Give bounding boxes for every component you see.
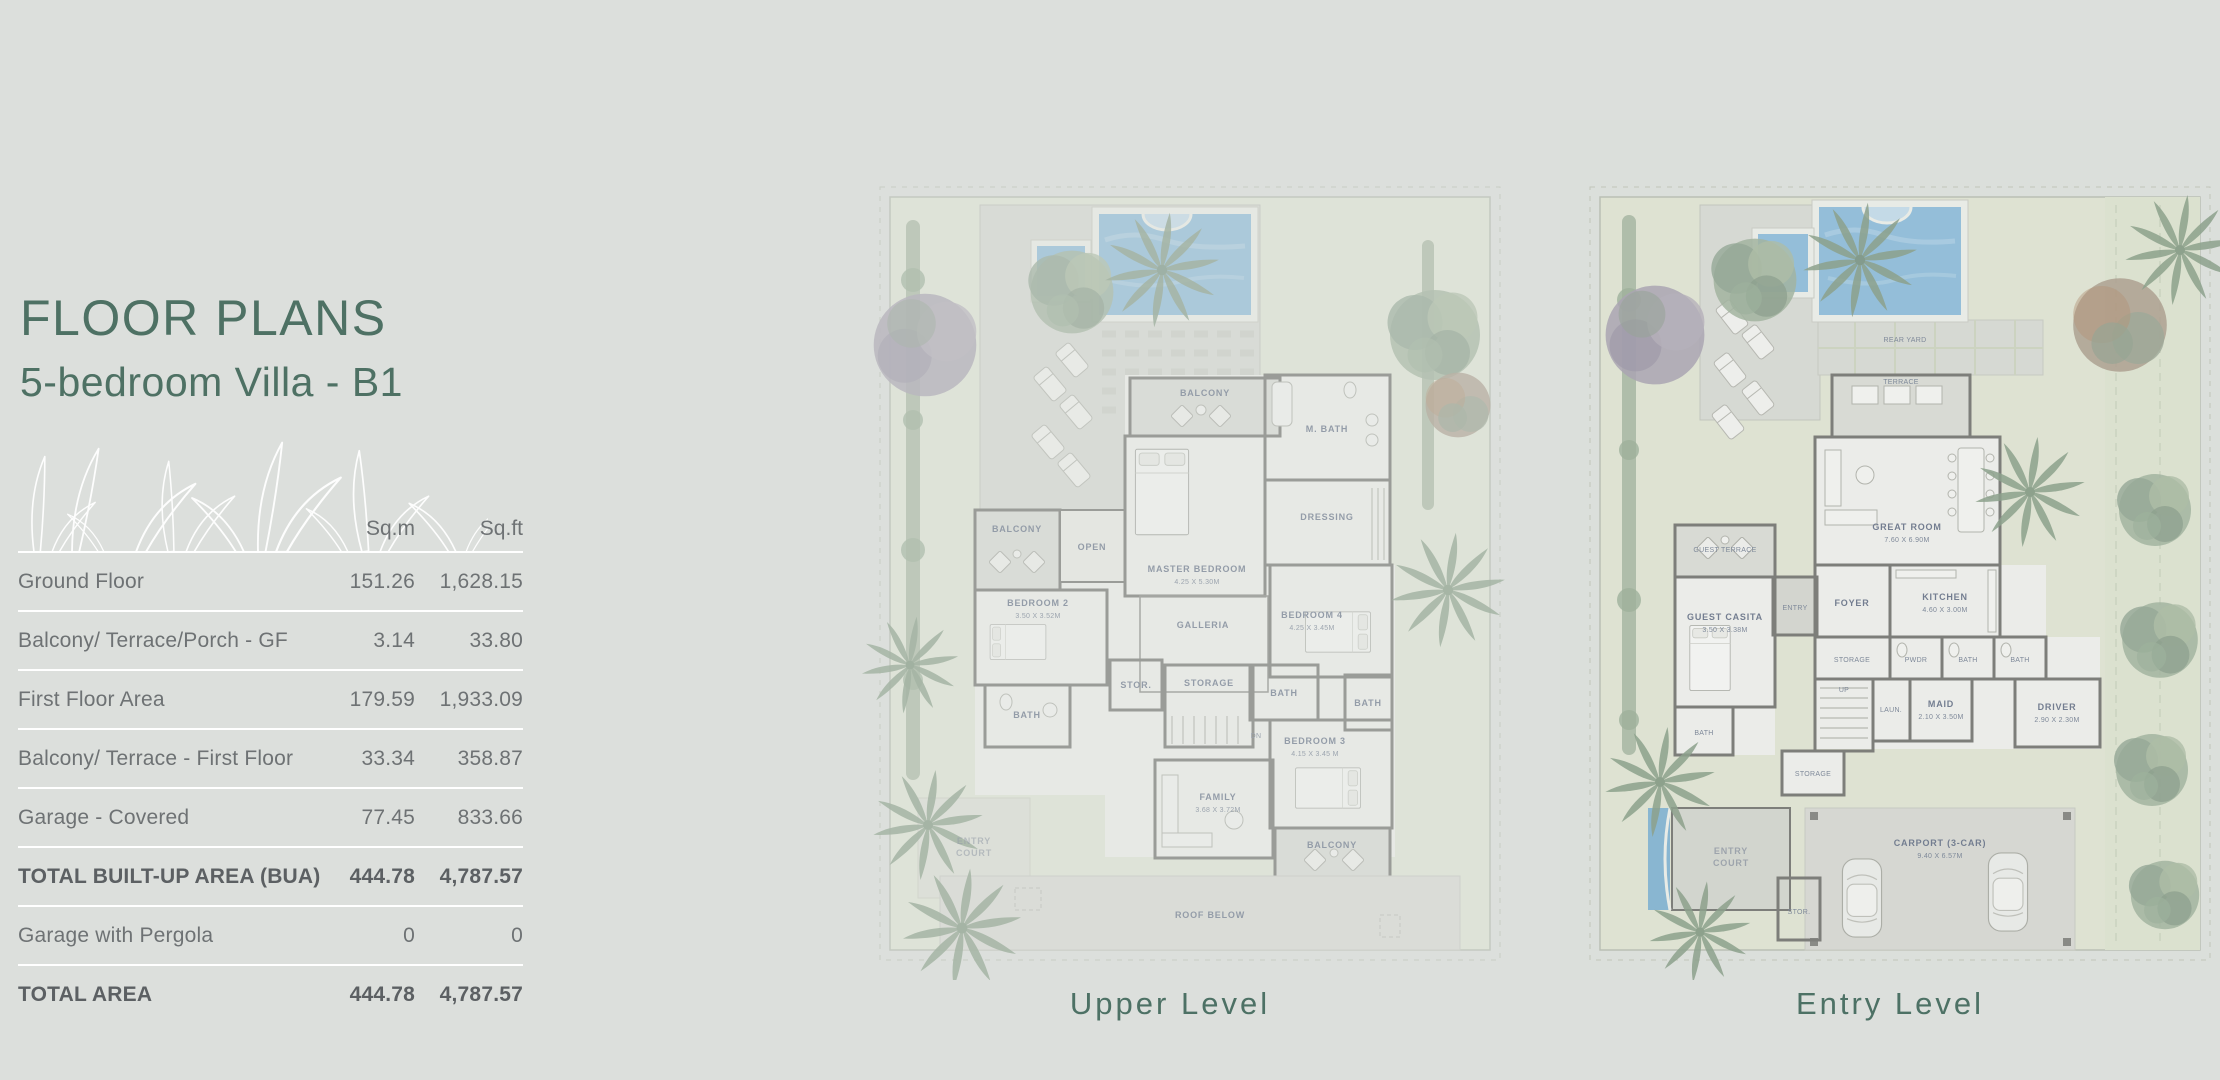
table-rows: Ground Floor 151.26 1,628.15 Balcony/ Te… [18,553,523,1023]
row-sqm-value: 444.78 [335,865,415,889]
table-row: Balcony/ Terrace - First Floor 33.34 358… [18,730,523,789]
page-subtitle: 5-bedroom Villa - B1 [20,361,403,404]
page-title: FLOOR PLANS [20,292,403,345]
row-label: Garage - Covered [18,806,335,830]
table-row: TOTAL AREA 444.78 4,787.57 [18,966,523,1023]
fade-overlay [810,120,1530,980]
row-sqm-value: 151.26 [335,570,415,594]
fade-overlay [1560,120,2220,980]
row-sqm-value: 179.59 [335,688,415,712]
row-sqm-value: 77.45 [335,806,415,830]
entry-level-floor-plan: REAR YARD TERRACE GREAT ROOM 7.60 X 6.90… [1560,120,2220,980]
table-row: Garage with Pergola 0 0 [18,907,523,966]
entry-level-caption: Entry Level [1560,986,2220,1022]
table-row: Garage - Covered 77.45 833.66 [18,789,523,848]
row-label: TOTAL BUILT-UP AREA (BUA) [18,865,335,889]
table-row: Ground Floor 151.26 1,628.15 [18,553,523,612]
row-sqft-value: 4,787.57 [415,865,523,889]
row-sqft-value: 33.80 [415,629,523,653]
upper-level-caption: Upper Level [810,986,1530,1022]
row-label: First Floor Area [18,688,335,712]
table-row: First Floor Area 179.59 1,933.09 [18,671,523,730]
row-sqft-value: 358.87 [415,747,523,771]
table-header: Sq.m Sq.ft [18,424,523,553]
area-table: Sq.m Sq.ft Ground Floor 151.26 1,628.15 … [18,424,523,1023]
row-sqft-value: 1,933.09 [415,688,523,712]
row-sqft-value: 1,628.15 [415,570,523,594]
row-sqft-value: 4,787.57 [415,983,523,1007]
table-row: Balcony/ Terrace/Porch - GF 3.14 33.80 [18,612,523,671]
row-sqm-value: 444.78 [335,983,415,1007]
upper-level-floor-plan: BALCONY M. BATH DRESSING MASTER BEDROOM … [810,120,1530,980]
column-header-sqft: Sq.ft [415,517,523,541]
row-sqft-value: 833.66 [415,806,523,830]
row-label: TOTAL AREA [18,983,335,1007]
row-sqm-value: 0 [335,924,415,948]
floor-plans-page: FLOOR PLANS 5-bedroom Villa - B1 [0,0,2220,1080]
column-header-sqm: Sq.m [335,517,415,541]
table-row: TOTAL BUILT-UP AREA (BUA) 444.78 4,787.5… [18,848,523,907]
row-sqm-value: 3.14 [335,629,415,653]
row-label: Garage with Pergola [18,924,335,948]
table-column-headers: Sq.m Sq.ft [335,517,523,541]
title-block: FLOOR PLANS 5-bedroom Villa - B1 [20,292,403,404]
row-label: Ground Floor [18,570,335,594]
row-sqft-value: 0 [415,924,523,948]
row-sqm-value: 33.34 [335,747,415,771]
row-label: Balcony/ Terrace/Porch - GF [18,629,335,653]
row-label: Balcony/ Terrace - First Floor [18,747,335,771]
